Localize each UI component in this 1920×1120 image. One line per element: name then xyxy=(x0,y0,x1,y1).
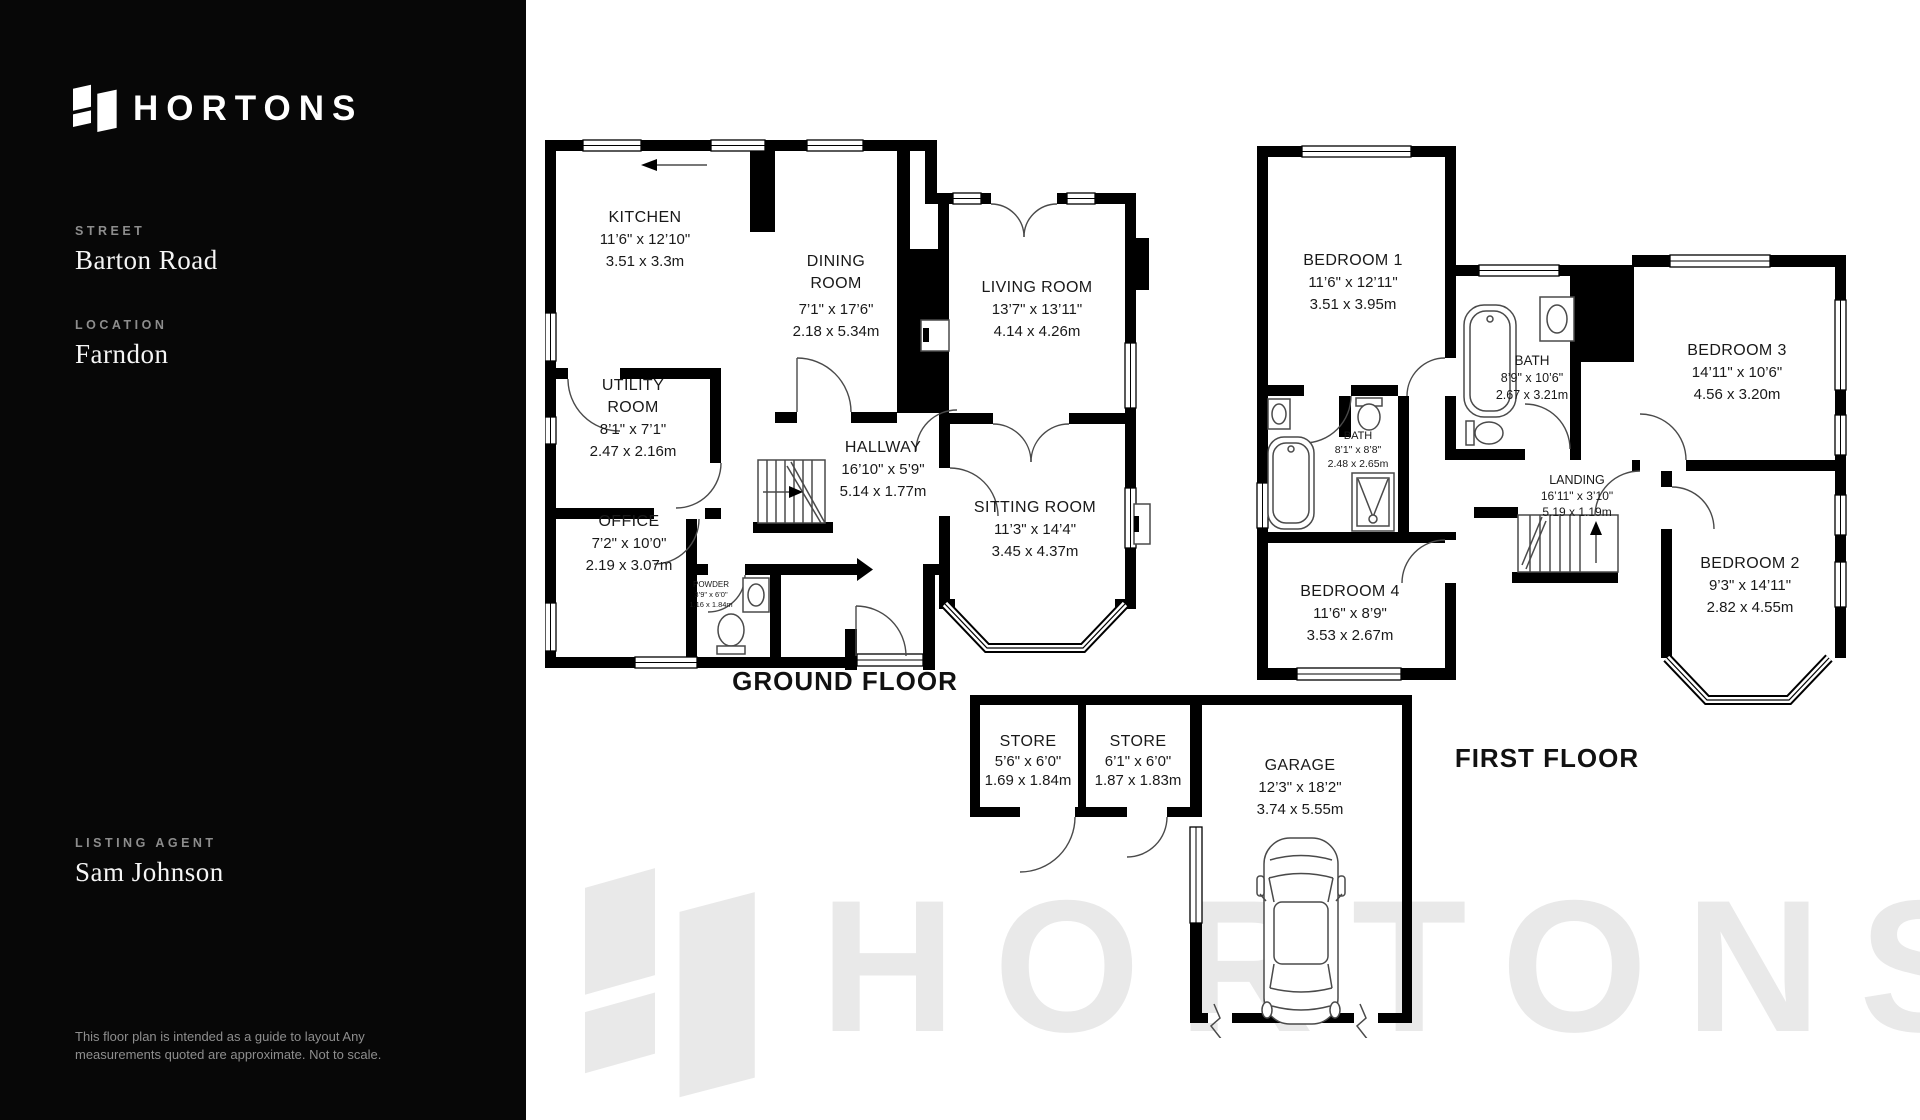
brand-name: HORTONS xyxy=(133,89,363,129)
store2-name: STORE xyxy=(1110,733,1167,750)
location-field: LOCATION Farndon xyxy=(75,318,169,370)
street-value: Barton Road xyxy=(75,245,218,276)
bath-ensuite-imperial: 8’1" x 8’8" xyxy=(1335,444,1382,456)
bath-main-imperial: 8’9" x 10’6" xyxy=(1501,371,1563,385)
bedroom1-metric: 3.51 x 3.95m xyxy=(1310,296,1397,313)
bedroom4-name: BEDROOM 4 xyxy=(1300,583,1400,600)
garage-window xyxy=(1190,827,1202,923)
living-room-fireplace xyxy=(921,320,949,351)
living-name: LIVING ROOM xyxy=(981,279,1092,296)
bath-toilet xyxy=(1466,421,1503,445)
ground-floor-label: GROUND FLOOR xyxy=(732,666,958,696)
bedroom3-imperial: 14’11" x 10’6" xyxy=(1692,364,1782,381)
entry-arrow xyxy=(841,558,873,581)
location-label: LOCATION xyxy=(75,318,169,332)
dining-name2: ROOM xyxy=(810,275,861,292)
bedroom1-name: BEDROOM 1 xyxy=(1303,252,1403,269)
ensuite-toilet xyxy=(1356,398,1382,430)
powder-sink xyxy=(743,578,769,612)
sitting-name: SITTING ROOM xyxy=(974,499,1096,516)
bedroom2-imperial: 9’3" x 14’11" xyxy=(1709,577,1791,594)
utility-metric: 2.47 x 2.16m xyxy=(590,443,677,460)
watermark-logo-icon xyxy=(585,866,760,1106)
garage-metric: 3.74 x 5.55m xyxy=(1257,801,1344,818)
ground-floor-stairs xyxy=(758,460,825,523)
kitchen-slide-arrow xyxy=(641,159,707,171)
bedroom4-imperial: 11’6" x 8’9" xyxy=(1313,605,1387,622)
hallway-name: HALLWAY xyxy=(845,439,921,456)
outbuilding-room-labels: STORE 5’6" x 6’0" 1.69 x 1.84m STORE 6’1… xyxy=(985,733,1344,818)
landing-metric: 5.19 x 1.19m xyxy=(1542,505,1611,519)
ground-floor-room-labels: KITCHEN 11’6" x 12’10" 3.51 x 3.3m DININ… xyxy=(586,209,1096,609)
ensuite-shower xyxy=(1352,473,1394,531)
kitchen-name: KITCHEN xyxy=(608,209,681,226)
sitting-metric: 3.45 x 4.37m xyxy=(992,543,1079,560)
store1-imperial: 5’6" x 6’0" xyxy=(995,753,1062,770)
landing-name: LANDING xyxy=(1549,473,1605,487)
hallway-imperial: 16’10" x 5’9" xyxy=(841,461,924,478)
ensuite-bathtub xyxy=(1268,437,1314,529)
garage-name: GARAGE xyxy=(1265,757,1336,774)
powder-toilet xyxy=(717,614,745,654)
first-floor-stairs xyxy=(1518,515,1618,572)
street-field: STREET Barton Road xyxy=(75,224,218,276)
hallway-metric: 5.14 x 1.77m xyxy=(840,483,927,500)
dining-imperial: 7’1" x 17’6" xyxy=(799,301,874,318)
bedroom3-name: BEDROOM 3 xyxy=(1687,342,1787,359)
store2-imperial: 6’1" x 6’0" xyxy=(1105,753,1172,770)
store1-name: STORE xyxy=(1000,733,1057,750)
bedroom1-imperial: 11’6" x 12’11" xyxy=(1308,274,1397,291)
outbuilding-plan: STORE 5’6" x 6’0" 1.69 x 1.84m STORE 6’1… xyxy=(962,688,1422,1038)
store1-metric: 1.69 x 1.84m xyxy=(985,772,1072,789)
bath-main-name: BATH xyxy=(1514,353,1549,368)
office-metric: 2.19 x 3.07m xyxy=(586,557,673,574)
bedroom3-metric: 4.56 x 3.20m xyxy=(1694,386,1781,403)
utility-imperial: 8’1" x 7’1" xyxy=(600,421,667,438)
store-doors xyxy=(1020,817,1167,872)
bath-sink xyxy=(1540,297,1574,341)
listing-agent-value: Sam Johnson xyxy=(75,857,224,888)
listing-agent-field: LISTING AGENT Sam Johnson xyxy=(75,836,224,888)
bedroom2-name: BEDROOM 2 xyxy=(1700,555,1800,572)
bath-main-metric: 2.67 x 3.21m xyxy=(1496,388,1568,402)
utility-name2: ROOM xyxy=(607,399,658,416)
garage-imperial: 12’3" x 18’2" xyxy=(1258,779,1341,796)
powder-imperial: 3’9" x 6’0" xyxy=(694,590,728,599)
first-floor-label: FIRST FLOOR xyxy=(1455,743,1639,773)
store2-metric: 1.87 x 1.83m xyxy=(1095,772,1182,789)
kitchen-metric: 3.51 x 3.3m xyxy=(606,253,684,270)
office-name: OFFICE xyxy=(598,513,659,530)
sitting-room-fireplace xyxy=(1134,504,1150,544)
disclaimer-text: This floor plan is intended as a guide t… xyxy=(75,1028,453,1063)
kitchen-imperial: 11’6" x 12’10" xyxy=(600,231,690,248)
sitting-room-bay-window xyxy=(945,604,1125,648)
powder-metric: 1.16 x 1.84m xyxy=(689,600,732,609)
powder-name: POWDER xyxy=(693,580,729,589)
car-icon xyxy=(1257,838,1345,1024)
hortons-logo-icon xyxy=(73,84,118,134)
ensuite-sink xyxy=(1268,399,1290,429)
utility-name: UTILITY xyxy=(602,377,664,394)
dining-metric: 2.18 x 5.34m xyxy=(793,323,880,340)
location-value: Farndon xyxy=(75,339,169,370)
bedroom2-bay-window xyxy=(1667,658,1829,700)
ground-floor-plan: KITCHEN 11’6" x 12’10" 3.51 x 3.3m DININ… xyxy=(545,118,1165,718)
living-imperial: 13’7" x 13’11" xyxy=(992,301,1082,318)
brand: HORTONS xyxy=(73,84,363,134)
bath-ensuite-metric: 2.48 x 2.65m xyxy=(1328,458,1389,470)
bedroom2-metric: 2.82 x 4.55m xyxy=(1707,599,1794,616)
landing-imperial: 16’11" x 3’10" xyxy=(1541,489,1613,503)
listing-agent-label: LISTING AGENT xyxy=(75,836,224,850)
dining-name: DINING xyxy=(807,253,865,270)
bath-ensuite-name: BATH xyxy=(1344,430,1373,442)
sitting-imperial: 11’3" x 14’4" xyxy=(994,521,1076,538)
street-label: STREET xyxy=(75,224,218,238)
living-metric: 4.14 x 4.26m xyxy=(994,323,1081,340)
office-imperial: 7’2" x 10’0" xyxy=(592,535,667,552)
bedroom4-metric: 3.53 x 2.67m xyxy=(1307,627,1394,644)
sidebar: HORTONS STREET Barton Road LOCATION Farn… xyxy=(0,0,526,1120)
